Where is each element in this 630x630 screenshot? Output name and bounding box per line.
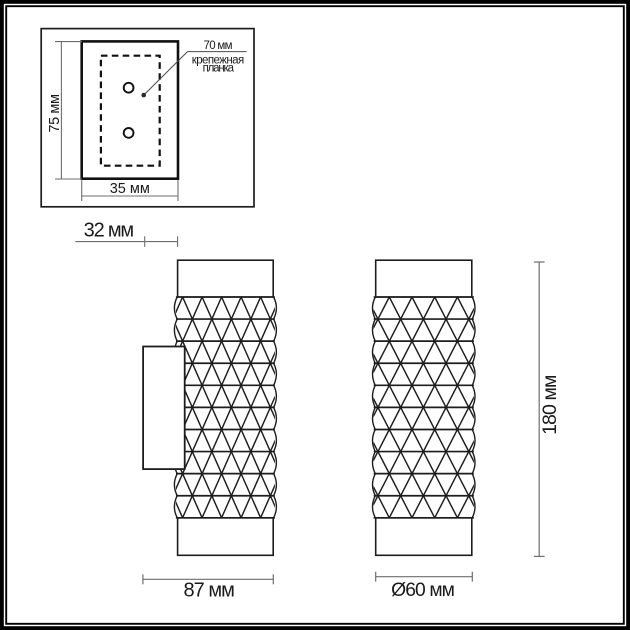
svg-text:планка: планка (203, 63, 235, 75)
svg-text:35 мм: 35 мм (110, 181, 150, 197)
svg-text:32 мм: 32 мм (84, 220, 134, 242)
svg-text:Ø60 мм: Ø60 мм (391, 580, 454, 601)
svg-text:75 мм: 75 мм (47, 94, 63, 132)
svg-text:87 мм: 87 мм (184, 580, 235, 602)
svg-text:180 мм: 180 мм (539, 375, 561, 435)
svg-text:70 мм: 70 мм (203, 40, 232, 52)
